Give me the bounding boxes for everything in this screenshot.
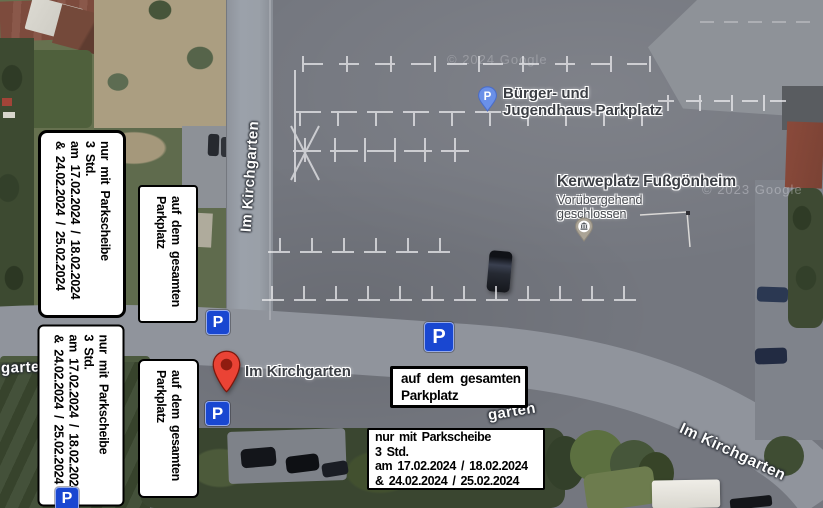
map-canvas[interactable]: © 2024 Google © 2023 Google Im Kirchgart…: [0, 0, 823, 508]
parking-signs: P P P P: [0, 0, 823, 508]
parking-sign-icon[interactable]: P: [206, 310, 230, 335]
parking-sign-icon[interactable]: P: [55, 487, 79, 508]
parking-sign-icon[interactable]: P: [205, 401, 230, 426]
parking-sign-icon[interactable]: P: [424, 322, 454, 352]
